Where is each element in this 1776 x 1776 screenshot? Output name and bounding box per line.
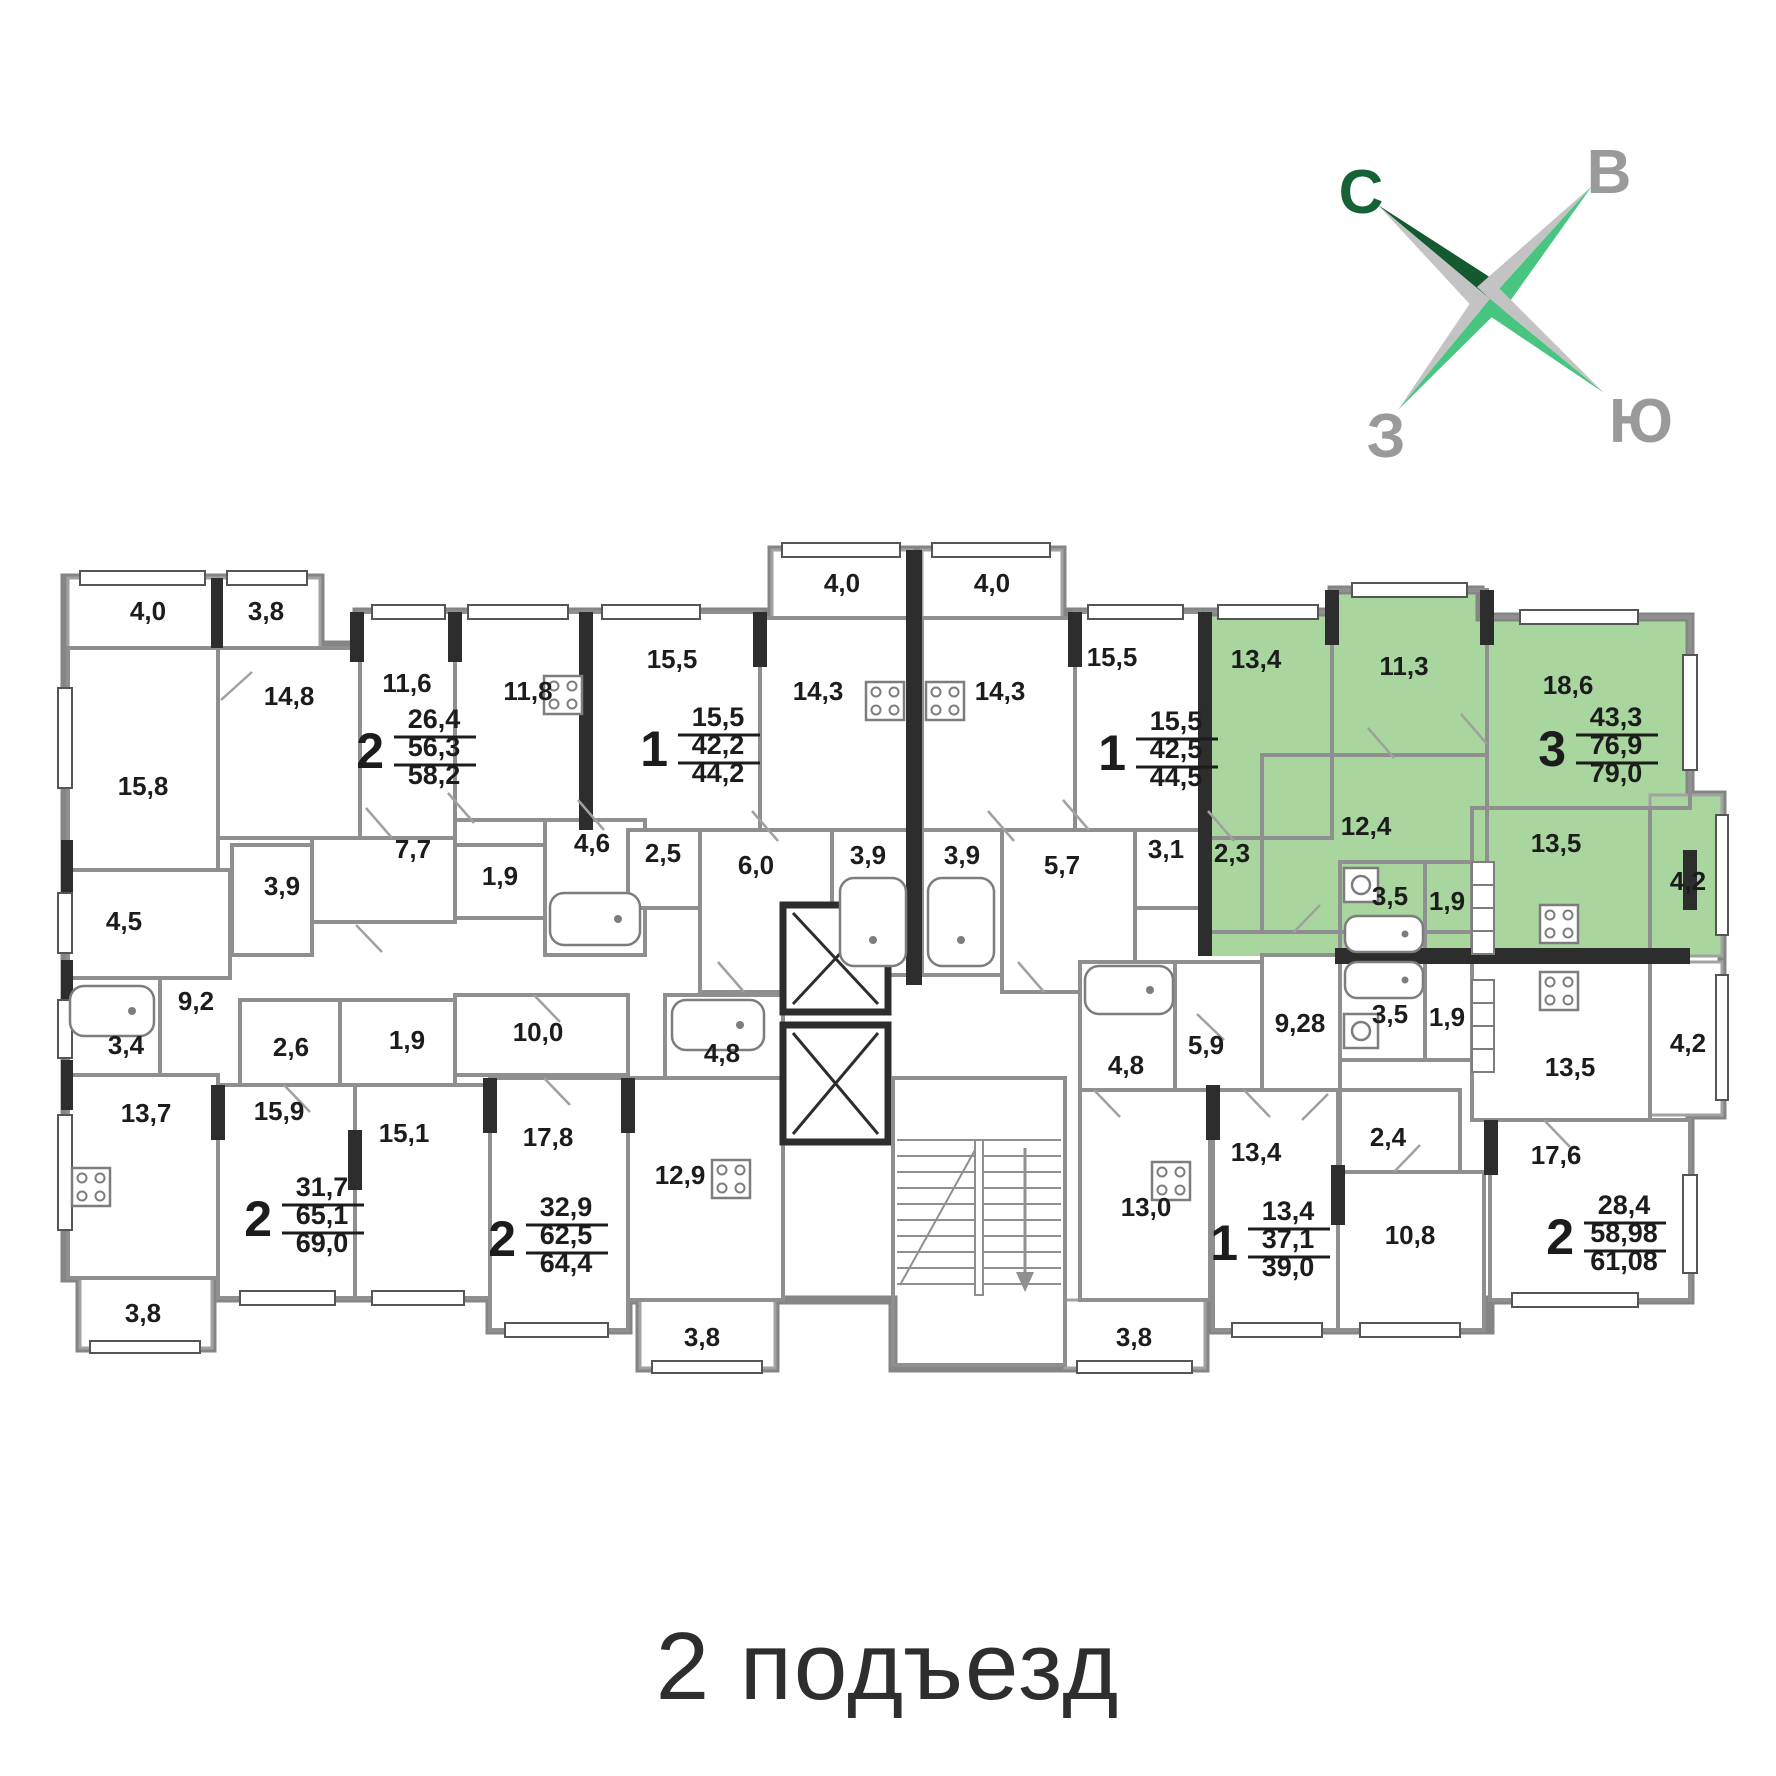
room-area-label: 4,0 bbox=[974, 568, 1010, 598]
compass-north-label: С bbox=[1339, 158, 1384, 227]
apartment-living-area: 31,7 bbox=[296, 1172, 349, 1202]
apartment-type: 2 bbox=[1546, 1209, 1574, 1265]
room-area-label: 3,5 bbox=[1372, 881, 1408, 911]
compass-star bbox=[1378, 186, 1604, 410]
room-area-label: 15,8 bbox=[118, 771, 169, 801]
room-area-label: 2,4 bbox=[1370, 1122, 1407, 1152]
room-area-label: 9,2 bbox=[178, 986, 214, 1016]
apartment-living-area: 15,5 bbox=[692, 702, 745, 732]
compass-south-label: Ю bbox=[1609, 387, 1673, 456]
floor-plan: СВЗЮ 4,03,815,814,811,611,815,514,34,04,… bbox=[0, 0, 1776, 1776]
room-area-label: 4,0 bbox=[130, 596, 166, 626]
room-area-label: 4,8 bbox=[704, 1038, 740, 1068]
room-area-label: 3,8 bbox=[248, 596, 284, 626]
room-area-label: 10,0 bbox=[513, 1017, 564, 1047]
room-area-label: 15,9 bbox=[254, 1096, 305, 1126]
room-area-label: 14,8 bbox=[264, 681, 315, 711]
room-area-label: 3,5 bbox=[1372, 999, 1408, 1029]
compass-west-label: З bbox=[1367, 402, 1406, 471]
room-area-label: 4,6 bbox=[574, 828, 610, 858]
room-area-label: 12,9 bbox=[655, 1160, 706, 1190]
apartment-living-area: 43,3 bbox=[1590, 702, 1643, 732]
room-area-label: 17,8 bbox=[523, 1122, 574, 1152]
apartment-living-area: 26,4 bbox=[408, 704, 461, 734]
room-area-label: 1,9 bbox=[1429, 1002, 1465, 1032]
room-area-label: 9,28 bbox=[1275, 1008, 1326, 1038]
room-area-label: 5,7 bbox=[1044, 850, 1080, 880]
room-area-label: 11,3 bbox=[1379, 651, 1428, 681]
room-area-label: 7,7 bbox=[395, 834, 431, 864]
apartment-living-area: 15,5 bbox=[1150, 706, 1203, 736]
room-area-label: 12,4 bbox=[1341, 811, 1392, 841]
room-area-label: 3,8 bbox=[1116, 1322, 1152, 1352]
stove-icon bbox=[866, 682, 904, 720]
apartment-type: 1 bbox=[1098, 725, 1126, 781]
room-area-label: 11,8 bbox=[503, 676, 552, 706]
room-area-label: 13,5 bbox=[1545, 1052, 1596, 1082]
apartment-living-area: 32,9 bbox=[540, 1192, 593, 1222]
room-area-label: 13,7 bbox=[121, 1098, 172, 1128]
room-area-label: 3,9 bbox=[850, 840, 886, 870]
compass: СВЗЮ bbox=[1339, 138, 1673, 471]
page-title: 2 подъезд bbox=[0, 1612, 1776, 1722]
apartment-type: 3 bbox=[1538, 721, 1566, 777]
stove-icon bbox=[926, 682, 964, 720]
stove-icon bbox=[712, 1160, 750, 1198]
room-area-label: 13,4 bbox=[1231, 644, 1282, 674]
room-area-label: 4,2 bbox=[1670, 866, 1706, 896]
room-area-label: 18,6 bbox=[1543, 670, 1594, 700]
room-area-label: 3,1 bbox=[1148, 834, 1184, 864]
room-area-label: 15,5 bbox=[1087, 642, 1138, 672]
room-area-label: 3,8 bbox=[125, 1298, 161, 1328]
room-area-label: 2,3 bbox=[1214, 838, 1250, 868]
stove-icon bbox=[72, 1168, 110, 1206]
compass-east-label: В bbox=[1587, 138, 1632, 207]
room-area-label: 1,9 bbox=[389, 1025, 425, 1055]
room-area-label: 2,5 bbox=[645, 838, 681, 868]
room-area-label: 5,9 bbox=[1188, 1030, 1224, 1060]
room-area-label: 3,9 bbox=[944, 840, 980, 870]
room-area-label: 10,8 bbox=[1385, 1220, 1436, 1250]
room-area-label: 3,8 bbox=[684, 1322, 720, 1352]
room-area-label: 14,3 bbox=[793, 676, 844, 706]
stove-icon bbox=[1540, 972, 1578, 1010]
room-area-label: 4,8 bbox=[1108, 1050, 1144, 1080]
apartment-type: 1 bbox=[640, 721, 668, 777]
room-area-label: 4,2 bbox=[1670, 1028, 1706, 1058]
room-area-label: 1,9 bbox=[482, 861, 518, 891]
floor-plan-page: СВЗЮ 4,03,815,814,811,611,815,514,34,04,… bbox=[0, 0, 1776, 1776]
room-area-label: 15,5 bbox=[647, 644, 698, 674]
room-area-label: 17,6 bbox=[1531, 1140, 1582, 1170]
room-area-label: 13,0 bbox=[1121, 1192, 1172, 1222]
room-area-label: 3,4 bbox=[108, 1030, 145, 1060]
apartment-type: 2 bbox=[356, 723, 384, 779]
apartment-type: 1 bbox=[1210, 1215, 1238, 1271]
room-area-label: 3,9 bbox=[264, 871, 300, 901]
room-area-label: 6,0 bbox=[738, 850, 774, 880]
apartment-type: 2 bbox=[488, 1211, 516, 1267]
room-area-label: 11,6 bbox=[382, 668, 431, 698]
room-area-label: 2,6 bbox=[273, 1032, 309, 1062]
room-area-label: 4,0 bbox=[824, 568, 860, 598]
apartment-living-area: 28,4 bbox=[1598, 1190, 1651, 1220]
room-area-label: 13,4 bbox=[1231, 1137, 1282, 1167]
staircase bbox=[893, 1078, 1065, 1365]
stove-icon bbox=[1540, 905, 1578, 943]
room-area-label: 13,5 bbox=[1531, 828, 1582, 858]
apartment-living-area: 13,4 bbox=[1262, 1196, 1315, 1226]
room-area-label: 15,1 bbox=[379, 1118, 430, 1148]
room-area-label: 1,9 bbox=[1429, 886, 1465, 916]
apartment-type: 2 bbox=[244, 1191, 272, 1247]
room-area-label: 14,3 bbox=[975, 676, 1026, 706]
room-area-label: 4,5 bbox=[106, 906, 142, 936]
